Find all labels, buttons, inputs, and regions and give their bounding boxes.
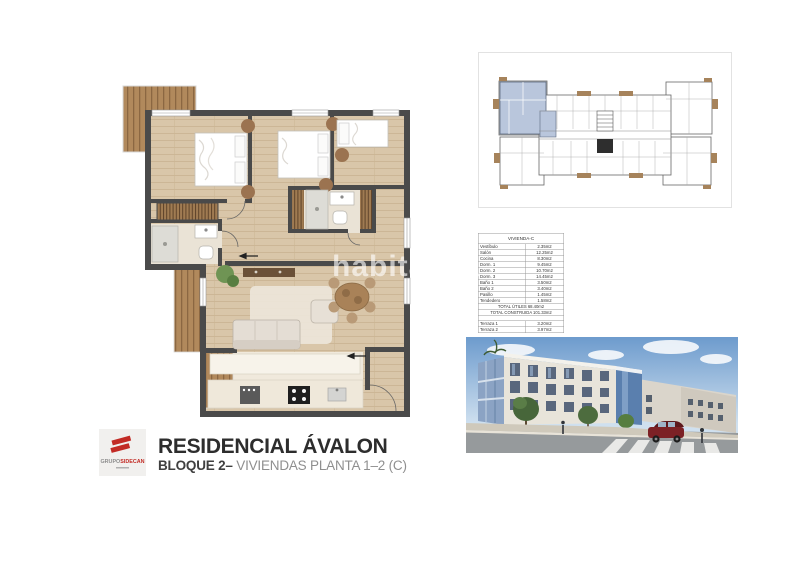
kitchen-fixtures <box>208 354 363 408</box>
total-construida: TOTAL CONSTRUIDA 101.33m2 <box>478 310 564 316</box>
unit-name: VIVIENDA-C <box>478 233 564 244</box>
terrace-label: Terraza 2 <box>478 327 525 333</box>
building-key-plan <box>478 52 732 208</box>
total-construida-row: TOTAL CONSTRUIDA 101.33m2 <box>478 310 564 316</box>
block-label: BLOQUE 2– <box>158 458 233 473</box>
logo-drawing: GRUPOSIDECAN <box>99 429 146 476</box>
terrace-2-deck <box>174 268 203 352</box>
apartment-floor-plan <box>115 78 433 423</box>
left-blue-section <box>478 357 504 425</box>
page-title: RESIDENCIAL ÁVALON <box>158 435 458 458</box>
logo-wordmark: GRUPOSIDECAN <box>100 459 144 465</box>
grupo-sidecan-logo: GRUPOSIDECAN <box>99 429 146 476</box>
building-render-drawing <box>466 337 738 453</box>
apartment-floor-plan-drawing <box>115 78 433 423</box>
page-subtitle: BLOQUE 2– VIVIENDAS PLANTA 1–2 (C) <box>158 458 458 474</box>
planta-label: VIVIENDAS PLANTA 1–2 (C) <box>233 458 407 473</box>
logo-tagline-rule <box>116 467 129 469</box>
wardrobe <box>157 203 218 220</box>
title-block: RESIDENCIAL ÁVALON BLOQUE 2– VIVIENDAS P… <box>158 435 458 474</box>
listing-page: { "branding": { "logo_text_gray": "GRUPO… <box>0 0 800 566</box>
table-row: Terraza 23.97m2 <box>478 327 564 333</box>
building-render <box>466 337 738 453</box>
area-table: VIVIENDA-C Vestíbulo2.35m2 Salón12.25m2 … <box>478 233 564 333</box>
key-plan-drawing <box>479 53 731 207</box>
terrace-area: 3.97m2 <box>525 327 563 333</box>
table-header-row: VIVIENDA-C <box>478 233 564 244</box>
